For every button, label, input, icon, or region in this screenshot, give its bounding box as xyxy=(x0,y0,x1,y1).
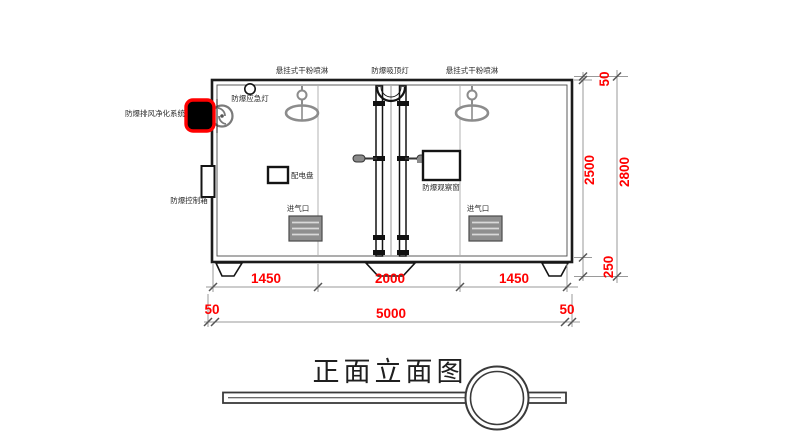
dim-total-width: 5000 xyxy=(376,306,406,321)
dim-inner-height: 2500 xyxy=(582,155,597,185)
exhaust-unit-highlight xyxy=(186,100,214,131)
dim-segment-right: 1450 xyxy=(499,271,529,286)
label-observation-window: 防爆观察窗 xyxy=(422,182,460,192)
dim-wall-left: 50 xyxy=(204,302,219,317)
label-exhaust-purifier: 防爆排风净化系统 xyxy=(125,108,185,118)
dim-segment-center: 2000 xyxy=(375,271,405,286)
emergency-light-icon xyxy=(245,84,255,94)
air-inlet-left-icon xyxy=(289,216,322,241)
dim-total-height: 2800 xyxy=(617,157,632,187)
power-panel-icon xyxy=(268,167,288,183)
dim-wall-right: 50 xyxy=(559,302,574,317)
air-inlet-right-icon xyxy=(469,216,502,241)
label-ceiling-light: 防爆吸顶灯 xyxy=(371,65,409,75)
dim-base-height: 250 xyxy=(601,256,616,279)
label-emergency-light: 防爆应急灯 xyxy=(231,93,269,103)
drawing-title: 正面立面图 xyxy=(280,350,500,389)
dim-roof-offset: 50 xyxy=(597,71,612,86)
label-air-inlet-right: 进气口 xyxy=(467,203,490,213)
observation-window-icon xyxy=(417,151,460,180)
label-sprinkler-left: 悬挂式干粉喷淋 xyxy=(276,65,329,75)
dim-segment-left: 1450 xyxy=(251,271,281,286)
cabin-outline xyxy=(212,80,572,262)
cad-canvas: 1450 2000 1450 50 5000 50 2500 50 2800 2… xyxy=(0,0,800,445)
label-control-box: 防爆控制箱 xyxy=(170,195,208,205)
control-box-icon xyxy=(202,166,215,197)
label-sprinkler-right: 悬挂式干粉喷淋 xyxy=(446,65,499,75)
label-power-panel: 配电盘 xyxy=(291,170,314,180)
label-air-inlet-left: 进气口 xyxy=(287,203,310,213)
